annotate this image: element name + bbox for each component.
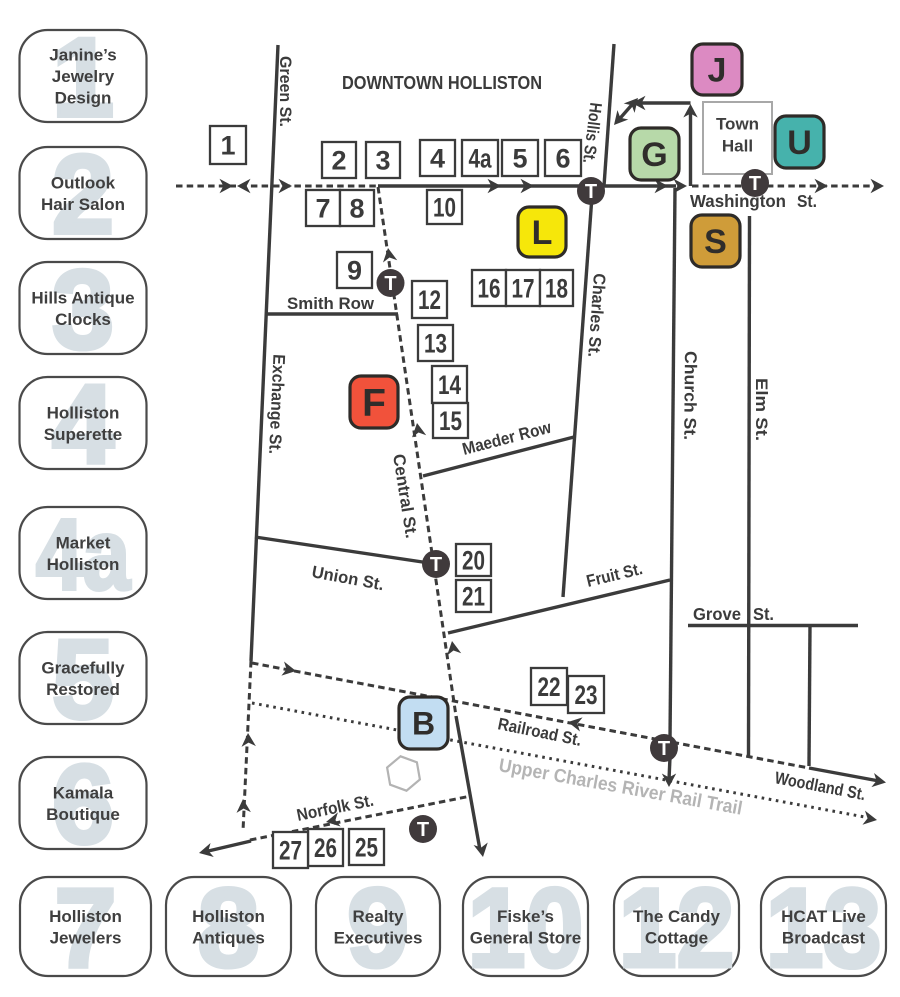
- svg-text:Holliston: Holliston: [47, 555, 120, 574]
- svg-text:17: 17: [512, 274, 535, 304]
- svg-text:Cottage: Cottage: [645, 928, 708, 947]
- svg-text:Holliston: Holliston: [47, 403, 120, 422]
- svg-text:HCAT Live: HCAT Live: [781, 907, 866, 926]
- svg-text:The Candy: The Candy: [633, 907, 720, 926]
- svg-text:4: 4: [430, 144, 445, 174]
- svg-text:St.: St.: [753, 604, 774, 624]
- svg-text:Realty: Realty: [352, 907, 404, 926]
- svg-text:U: U: [787, 124, 812, 162]
- svg-text:DOWNTOWN HOLLISTON: DOWNTOWN HOLLISTON: [342, 72, 542, 93]
- svg-text:15: 15: [439, 406, 462, 436]
- svg-text:Market: Market: [56, 533, 111, 552]
- svg-text:St.: St.: [797, 191, 817, 211]
- svg-text:T: T: [417, 819, 429, 841]
- svg-text:2: 2: [331, 146, 346, 176]
- svg-text:7: 7: [315, 194, 330, 224]
- svg-text:14: 14: [438, 370, 461, 400]
- svg-text:Hall: Hall: [722, 137, 753, 156]
- svg-text:13: 13: [424, 329, 447, 359]
- svg-text:12: 12: [418, 285, 441, 315]
- svg-text:10: 10: [433, 193, 456, 223]
- svg-text:23: 23: [575, 680, 598, 710]
- svg-text:Executives: Executives: [334, 928, 423, 947]
- svg-text:Elm St.: Elm St.: [752, 378, 771, 441]
- svg-text:T: T: [430, 554, 442, 576]
- svg-text:Jewelers: Jewelers: [50, 928, 122, 947]
- svg-text:5: 5: [512, 144, 527, 174]
- svg-text:J: J: [708, 52, 727, 90]
- svg-text:Outlook: Outlook: [51, 173, 116, 192]
- svg-text:B: B: [412, 706, 435, 742]
- svg-text:L: L: [532, 214, 553, 252]
- svg-text:Broadcast: Broadcast: [782, 928, 865, 947]
- svg-text:Janine’s: Janine’s: [49, 46, 116, 65]
- svg-text:Design: Design: [55, 89, 112, 108]
- svg-text:G: G: [641, 136, 667, 174]
- svg-text:Church St.: Church St.: [680, 351, 700, 440]
- svg-text:Hills Antique: Hills Antique: [31, 288, 134, 307]
- svg-text:27: 27: [279, 836, 302, 866]
- svg-text:Washington: Washington: [690, 191, 786, 211]
- svg-text:4a: 4a: [469, 144, 493, 174]
- svg-text:25: 25: [355, 833, 378, 863]
- svg-text:21: 21: [462, 582, 485, 612]
- svg-text:Jewelry: Jewelry: [52, 67, 115, 86]
- svg-text:18: 18: [545, 274, 568, 304]
- svg-text:T: T: [749, 173, 761, 195]
- svg-text:Kamala: Kamala: [53, 783, 114, 802]
- svg-text:T: T: [384, 273, 396, 295]
- svg-text:Gracefully: Gracefully: [41, 658, 125, 677]
- svg-text:Antiques: Antiques: [192, 928, 265, 947]
- svg-text:Town: Town: [716, 115, 759, 134]
- svg-text:3: 3: [375, 146, 390, 176]
- svg-text:Boutique: Boutique: [46, 805, 120, 824]
- svg-text:Hair Salon: Hair Salon: [41, 195, 125, 214]
- svg-text:Clocks: Clocks: [55, 310, 111, 329]
- svg-text:Holliston: Holliston: [49, 907, 122, 926]
- svg-text:Holliston: Holliston: [192, 907, 265, 926]
- svg-text:Smith Row: Smith Row: [287, 294, 375, 313]
- svg-text:Grove: Grove: [693, 604, 741, 624]
- svg-text:General Store: General Store: [470, 928, 582, 947]
- svg-text:16: 16: [478, 274, 501, 304]
- svg-text:Green St.: Green St.: [276, 56, 295, 127]
- svg-text:20: 20: [462, 546, 485, 576]
- svg-text:8: 8: [349, 194, 364, 224]
- svg-text:T: T: [585, 181, 597, 203]
- svg-text:S: S: [704, 223, 727, 261]
- svg-text:26: 26: [314, 833, 337, 863]
- svg-text:Superette: Superette: [44, 425, 122, 444]
- svg-text:Fiske’s: Fiske’s: [497, 907, 554, 926]
- svg-text:T: T: [658, 738, 670, 760]
- svg-text:9: 9: [347, 256, 362, 286]
- svg-text:1: 1: [220, 131, 235, 161]
- svg-text:6: 6: [555, 144, 570, 174]
- svg-text:F: F: [362, 382, 386, 425]
- svg-text:22: 22: [538, 672, 561, 702]
- svg-text:Restored: Restored: [46, 680, 120, 699]
